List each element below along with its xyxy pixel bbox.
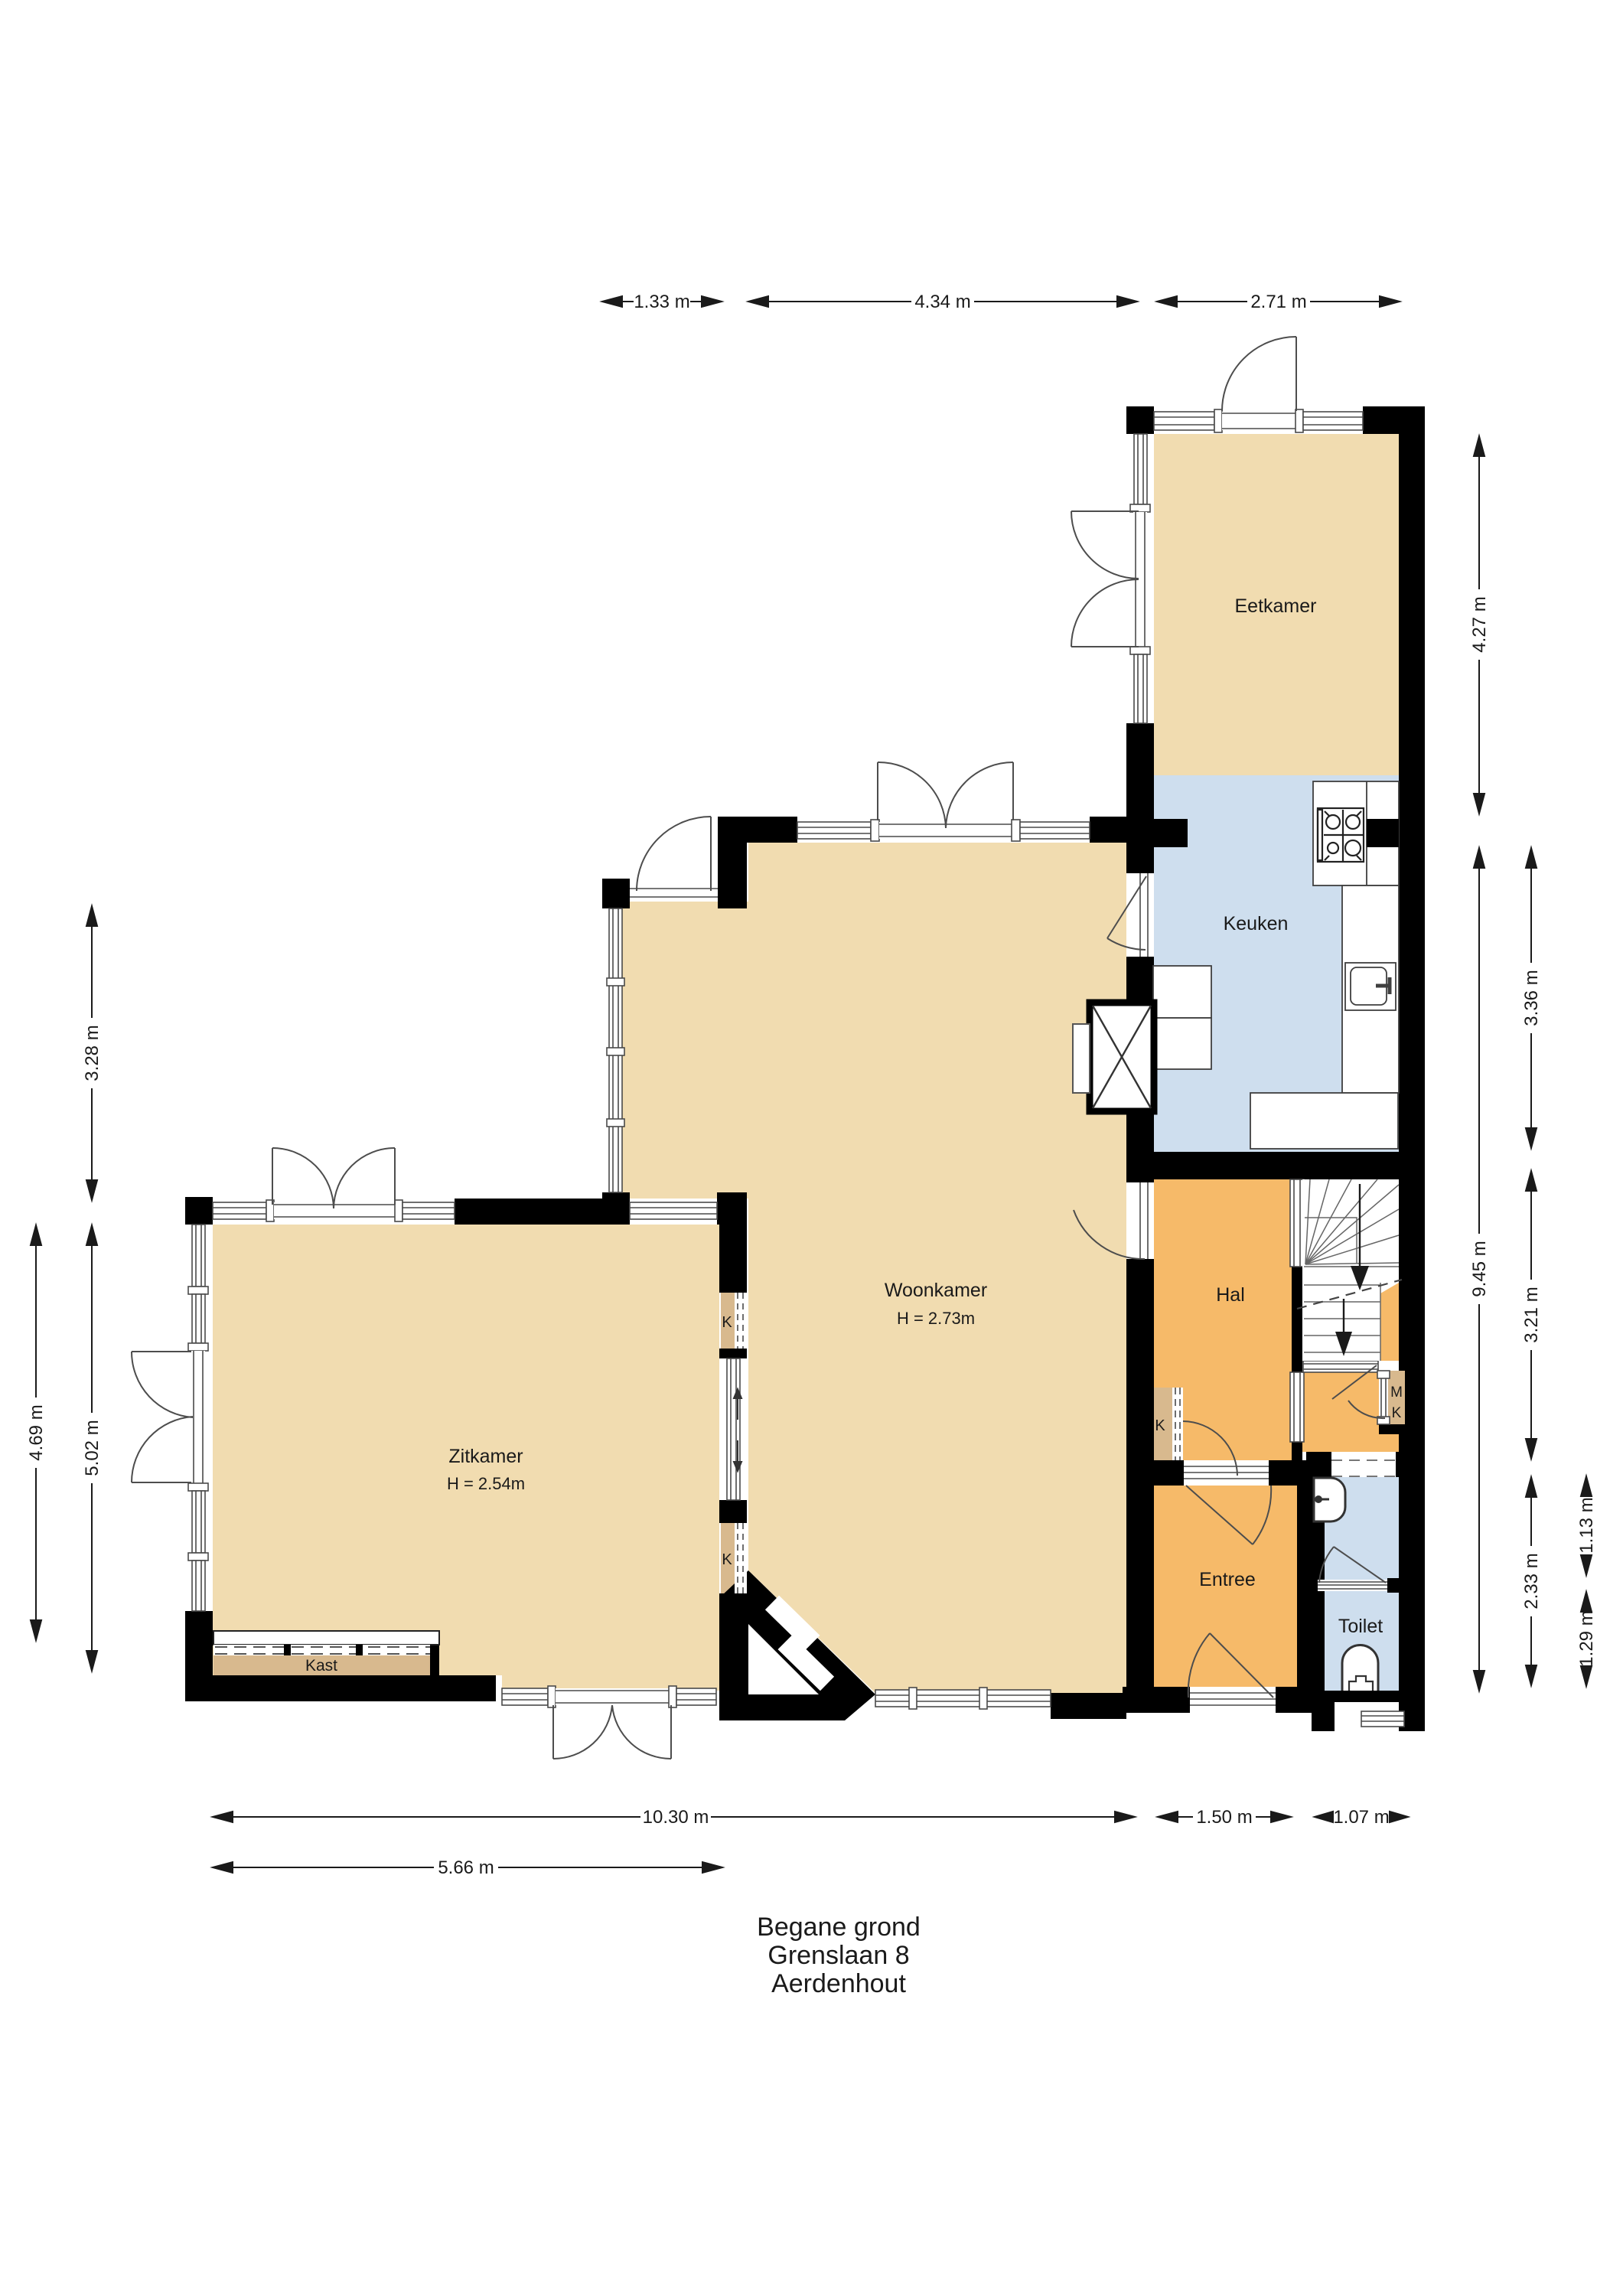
svg-text:3.36 m: 3.36 m: [1521, 970, 1542, 1026]
svg-text:Grenslaan 8: Grenslaan 8: [768, 1941, 909, 1970]
svg-text:Entree: Entree: [1199, 1569, 1256, 1590]
svg-text:10.30 m: 10.30 m: [643, 1807, 709, 1828]
svg-text:Woonkamer: Woonkamer: [885, 1280, 987, 1301]
svg-text:1.50 m: 1.50 m: [1196, 1807, 1252, 1828]
svg-text:1.13 m: 1.13 m: [1576, 1497, 1597, 1553]
svg-text:Toilet: Toilet: [1338, 1616, 1383, 1637]
svg-text:4.27 m: 4.27 m: [1469, 596, 1490, 652]
svg-text:Eetkamer: Eetkamer: [1235, 595, 1317, 617]
svg-text:1.07 m: 1.07 m: [1333, 1807, 1389, 1828]
svg-text:Hal: Hal: [1216, 1284, 1245, 1306]
svg-text:K: K: [722, 1314, 732, 1331]
svg-text:5.02 m: 5.02 m: [82, 1420, 103, 1476]
svg-text:4.34 m: 4.34 m: [914, 292, 970, 312]
svg-text:2.71 m: 2.71 m: [1250, 292, 1306, 312]
svg-text:4.69 m: 4.69 m: [26, 1404, 47, 1460]
svg-text:K: K: [1392, 1405, 1402, 1421]
svg-text:M: M: [1390, 1384, 1403, 1401]
svg-text:3.21 m: 3.21 m: [1521, 1287, 1542, 1342]
svg-text:5.66 m: 5.66 m: [438, 1857, 494, 1878]
svg-text:1.33 m: 1.33 m: [634, 292, 689, 312]
svg-text:H = 2.54m: H = 2.54m: [447, 1474, 525, 1493]
svg-text:K: K: [1155, 1417, 1165, 1434]
svg-text:H = 2.73m: H = 2.73m: [897, 1309, 975, 1328]
svg-text:1.29 m: 1.29 m: [1576, 1610, 1597, 1666]
svg-text:Kast: Kast: [305, 1657, 337, 1675]
svg-text:Aerdenhout: Aerdenhout: [771, 1969, 906, 1998]
svg-text:3.28 m: 3.28 m: [82, 1025, 103, 1081]
svg-text:Keuken: Keuken: [1224, 913, 1289, 934]
svg-text:K: K: [722, 1551, 732, 1568]
svg-text:Begane grond: Begane grond: [757, 1913, 921, 1942]
svg-text:2.33 m: 2.33 m: [1521, 1553, 1542, 1609]
svg-text:9.45 m: 9.45 m: [1469, 1241, 1490, 1296]
svg-text:Zitkamer: Zitkamer: [448, 1446, 523, 1467]
